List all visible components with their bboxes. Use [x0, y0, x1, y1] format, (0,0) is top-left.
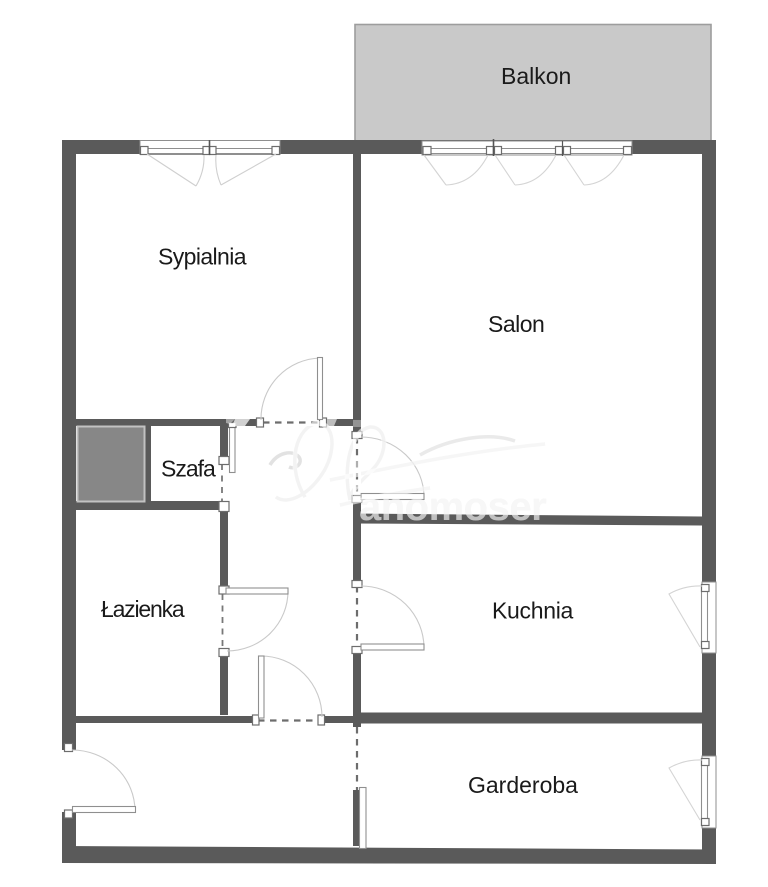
svg-text:Szafa: Szafa [161, 456, 216, 482]
svg-text:Sypialnia: Sypialnia [158, 244, 247, 270]
svg-text:Łazienka: Łazienka [101, 596, 185, 622]
svg-text:Garderoba: Garderoba [468, 772, 578, 798]
svg-text:Salon: Salon [488, 311, 544, 337]
svg-text:Kuchnia: Kuchnia [492, 598, 574, 624]
svg-text:Balkon: Balkon [501, 63, 571, 89]
svg-text:anomoser: anomoser [359, 485, 546, 529]
